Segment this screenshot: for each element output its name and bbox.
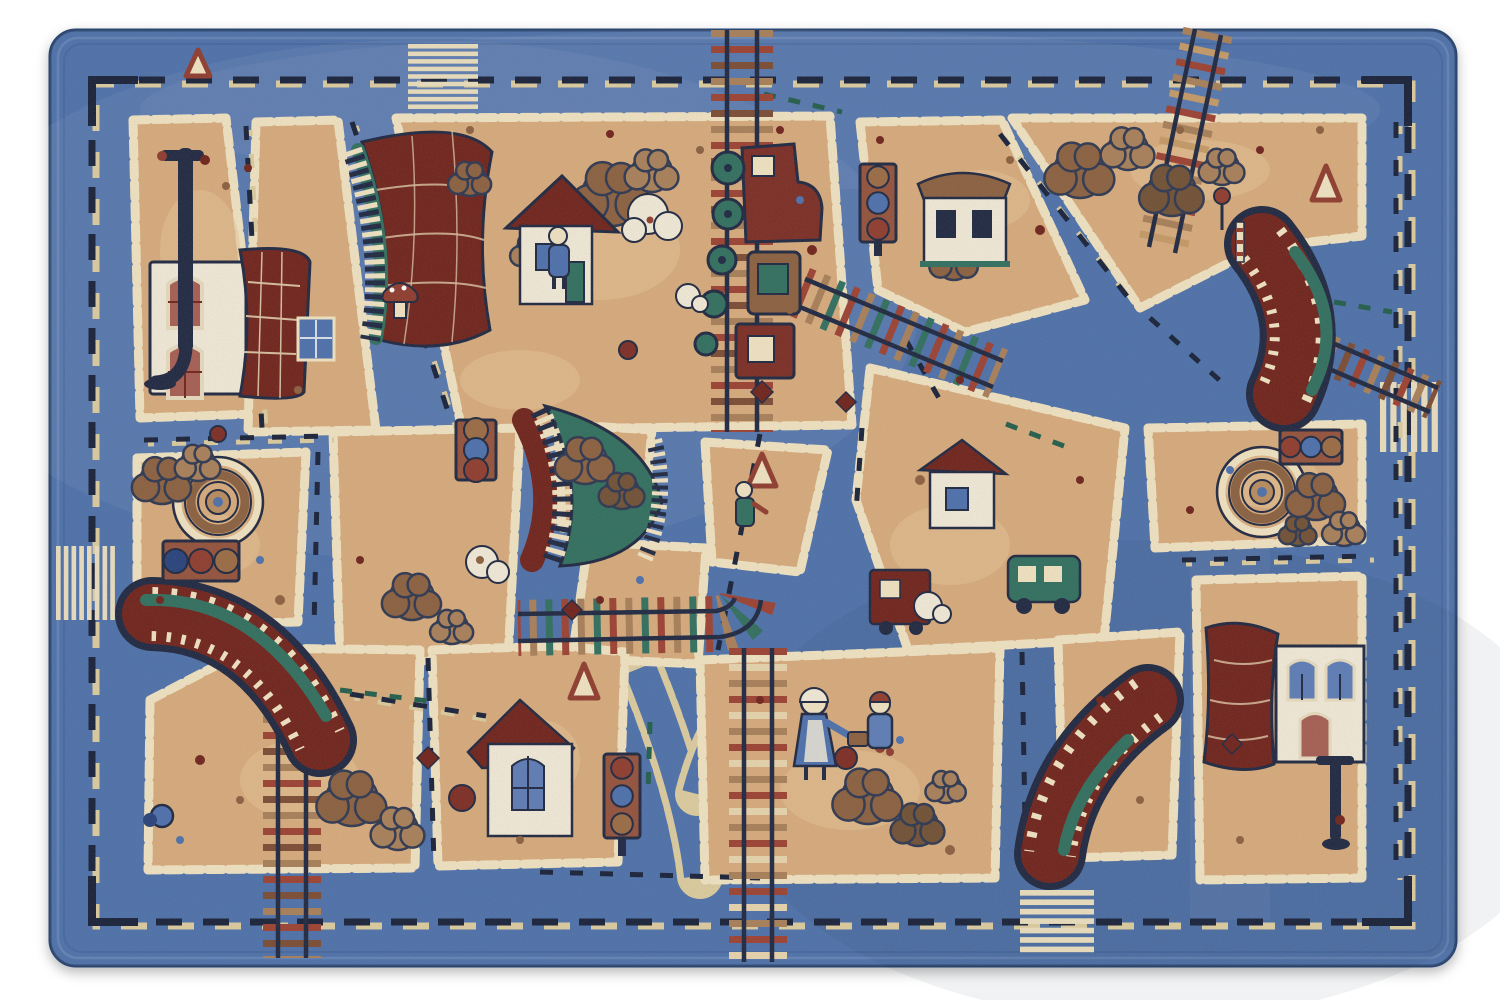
play-rug-photo [0, 0, 1500, 1000]
photo-backdrop [0, 0, 1500, 1000]
carpet-grain [50, 30, 1456, 966]
rug-scene [0, 29, 1500, 1000]
